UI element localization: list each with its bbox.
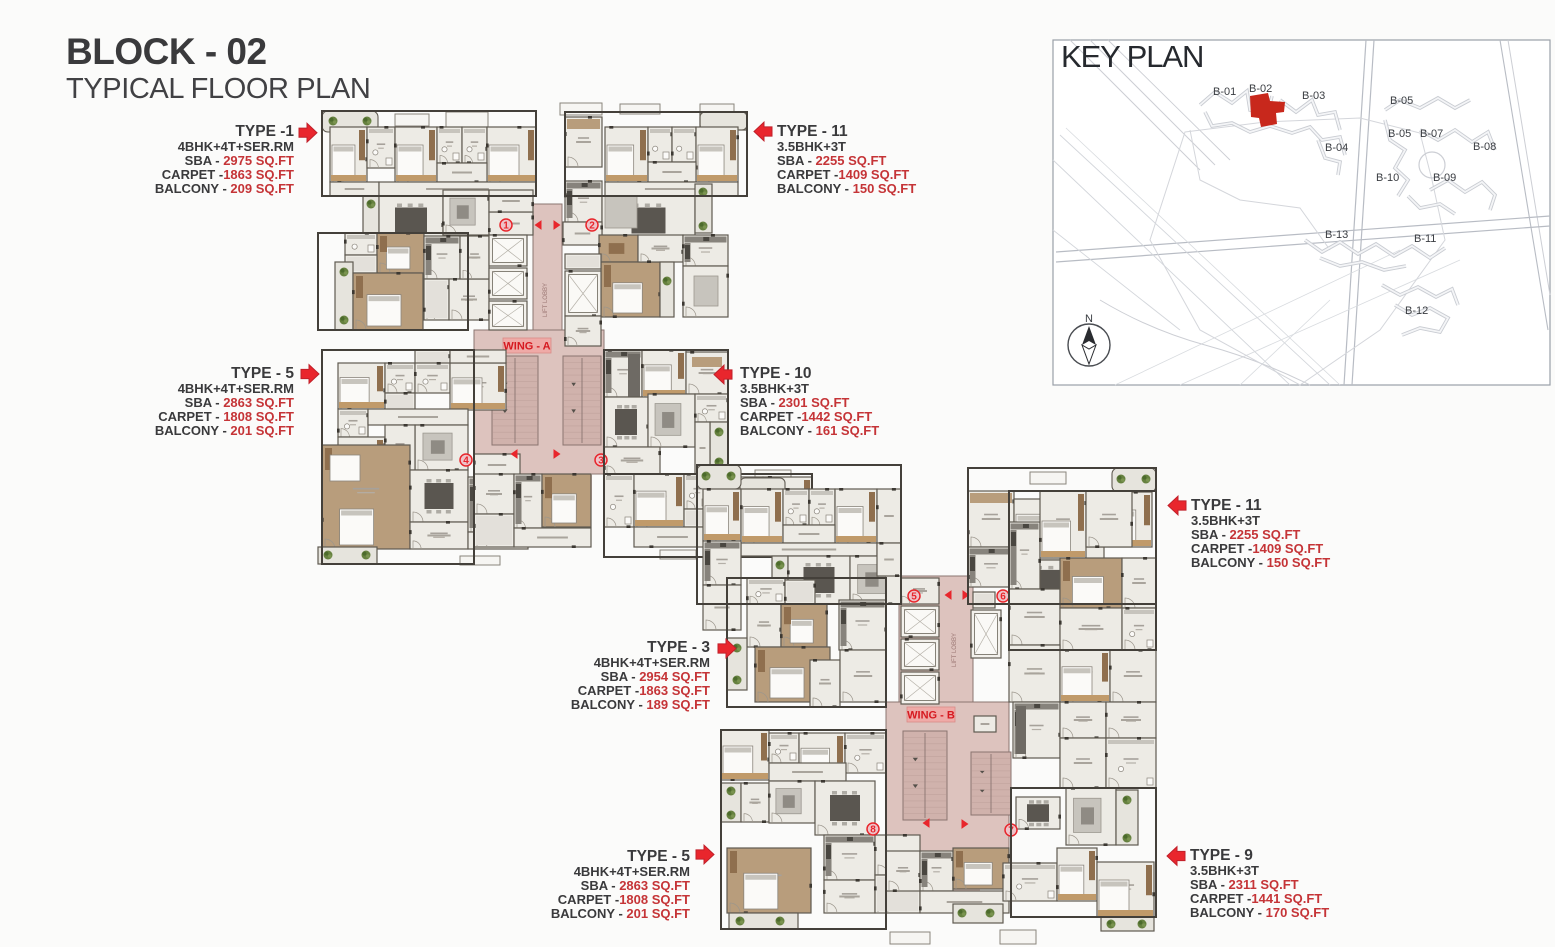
svg-text:B-05: B-05 <box>1390 95 1413 107</box>
svg-text:B-08: B-08 <box>1473 141 1496 153</box>
svg-text:LIFT LOBBY: LIFT LOBBY <box>543 283 549 317</box>
svg-text:B-01: B-01 <box>1213 86 1236 98</box>
svg-text:B-10: B-10 <box>1376 172 1399 184</box>
svg-text:4: 4 <box>463 455 469 466</box>
svg-text:5: 5 <box>911 591 917 602</box>
svg-text:1: 1 <box>503 220 509 231</box>
svg-text:B-05: B-05 <box>1388 128 1411 140</box>
svg-text:B-09: B-09 <box>1433 172 1456 184</box>
svg-text:B-12: B-12 <box>1405 305 1428 317</box>
svg-text:B-11: B-11 <box>1414 233 1436 245</box>
svg-text:2: 2 <box>589 220 595 231</box>
svg-text:6: 6 <box>1000 591 1006 602</box>
svg-text:LIFT LOBBY: LIFT LOBBY <box>952 633 958 667</box>
svg-text:B-07: B-07 <box>1420 128 1443 140</box>
svg-text:B-02: B-02 <box>1249 83 1272 95</box>
svg-text:B-04: B-04 <box>1325 142 1348 154</box>
svg-text:8: 8 <box>870 824 876 835</box>
svg-text:N: N <box>1085 313 1093 325</box>
svg-text:WING - B: WING - B <box>907 710 955 722</box>
svg-text:WING - A: WING - A <box>503 341 550 353</box>
svg-text:B-03: B-03 <box>1302 90 1325 102</box>
svg-text:B-13: B-13 <box>1325 229 1348 241</box>
